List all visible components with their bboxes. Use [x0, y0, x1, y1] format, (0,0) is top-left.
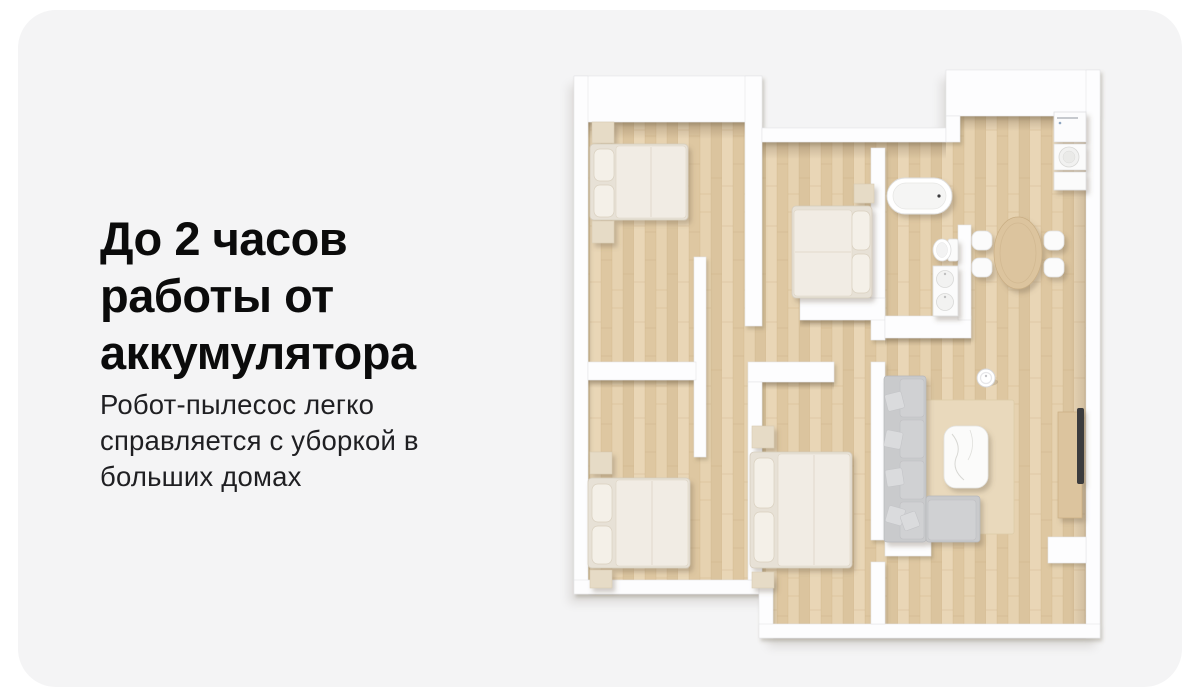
wall-recess-jamb-and-hall [745, 76, 762, 326]
toilet [933, 239, 958, 261]
wall-bathroom-right [958, 225, 971, 320]
wall-stub-bottom-right [1048, 537, 1086, 563]
description-line-2: справляется с уборкой в [100, 423, 419, 459]
dining-chair [972, 231, 992, 250]
nightstand [592, 122, 614, 143]
nightstand [590, 452, 612, 474]
nightstand [752, 426, 774, 448]
tv [1077, 408, 1084, 484]
floor-plan-render [558, 58, 1138, 658]
bed-pillow [852, 254, 870, 293]
bed-pillow [852, 211, 870, 250]
bed-pillow [594, 185, 614, 217]
description-line-3: больших домах [100, 459, 419, 495]
tv-console [1058, 408, 1084, 518]
wall-left-exterior [574, 76, 588, 594]
description-line-1: Робот-пылесос легко [100, 387, 419, 423]
wall-kitchen-nook-left [946, 116, 960, 142]
nightstand [752, 572, 774, 588]
bed-pillow [592, 484, 612, 522]
wall-middle-bedroom-bottom [800, 298, 885, 320]
bathtub-drain [937, 194, 940, 197]
wall-bottom-right [759, 624, 1100, 638]
counter [1054, 172, 1086, 190]
nightstand [592, 221, 614, 243]
laundry-basin [1054, 144, 1086, 170]
wall-bottom-middle-bedroom-top [748, 362, 834, 382]
washing-machine [1054, 112, 1086, 142]
dining-chair [972, 258, 992, 277]
feature-card: До 2 часов работы от аккумулятора Робот-… [18, 10, 1182, 687]
double-sink-vanity [933, 266, 958, 316]
wall-living-room-left-upper [871, 362, 885, 540]
kitchen-laundry-nook [1054, 112, 1086, 190]
bed-duvet [794, 210, 852, 296]
oval-dining-table [994, 217, 1042, 289]
description: Робот-пылесос легко справляется с уборко… [100, 387, 419, 495]
headline-line-1: До 2 часов [100, 210, 416, 267]
nightstand [854, 184, 874, 203]
headline-line-3: аккумулятора [100, 324, 416, 381]
dining-chair [1044, 231, 1064, 250]
headline-line-2: работы от [100, 267, 416, 324]
marble-coffee-table [944, 426, 988, 488]
dining-chair [1044, 258, 1064, 277]
wall-recess-bottom [762, 128, 946, 142]
bed-pillow [592, 526, 612, 564]
wall-corridor-partition [694, 257, 706, 457]
wall-top-left-section [574, 76, 762, 122]
nightstand [590, 570, 612, 588]
headline: До 2 часов работы от аккумулятора [100, 210, 416, 381]
wall-left-bedrooms-divider [588, 362, 696, 380]
bed-pillow [594, 149, 614, 181]
bed-pillow [754, 512, 774, 562]
bed-pillow [754, 458, 774, 508]
wall-right-exterior [1086, 70, 1100, 638]
wall-living-room-left-lower [871, 562, 885, 624]
wall-top-right-section [946, 70, 1100, 116]
